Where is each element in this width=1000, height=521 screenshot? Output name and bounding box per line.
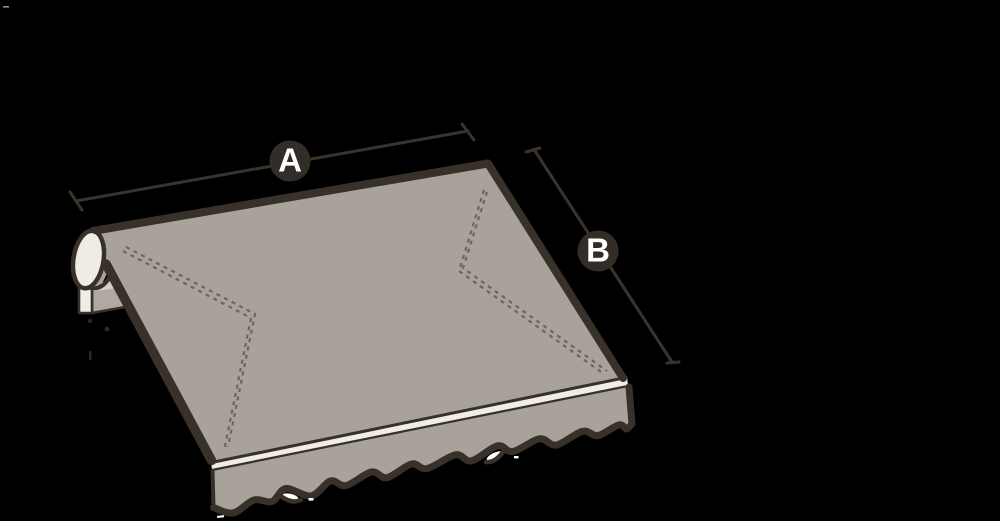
svg-text:A: A: [278, 142, 302, 179]
svg-text:B: B: [586, 232, 610, 269]
